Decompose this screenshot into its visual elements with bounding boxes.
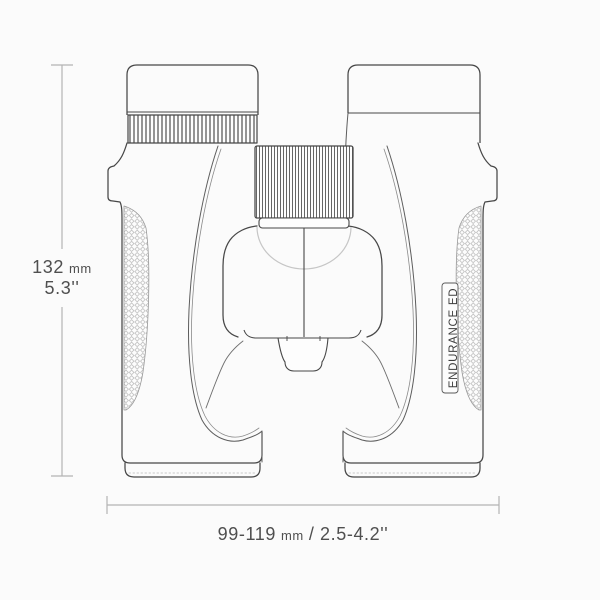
diagram-background [0, 0, 600, 600]
height-dimension-label-inches: 5.3'' [45, 278, 80, 298]
tripod-socket-cover [278, 338, 328, 371]
focus-wheel [255, 146, 353, 218]
product-badge-label: ENDURANCE ED [448, 288, 460, 388]
diagram-canvas: ENDURANCE ED 132mm 5.3'' [0, 0, 600, 600]
product-badge: ENDURANCE ED [442, 283, 460, 393]
focus-wheel-flange [259, 218, 349, 228]
left-eyecup-ribbed-ring [128, 115, 257, 143]
binoculars-technical-diagram: ENDURANCE ED 132mm 5.3'' [0, 0, 600, 600]
